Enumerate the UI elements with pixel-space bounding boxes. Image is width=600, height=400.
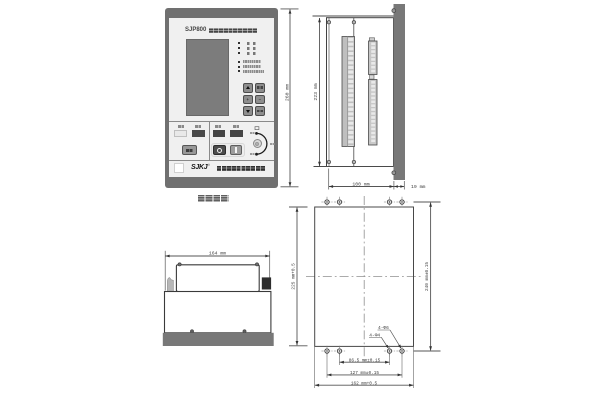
svg-text:223 mm: 223 mm: [313, 83, 319, 100]
svg-text:164 mm: 164 mm: [209, 251, 226, 257]
svg-text:19 mm: 19 mm: [411, 184, 426, 190]
svg-text:86.5 mm±0.15: 86.5 mm±0.15: [349, 358, 381, 363]
svg-text:100 mm: 100 mm: [352, 181, 369, 187]
svg-text:260 mm: 260 mm: [284, 84, 290, 101]
svg-text:4-Φ4: 4-Φ4: [369, 333, 380, 339]
svg-text:127 mm±0.15: 127 mm±0.15: [350, 371, 379, 376]
svg-text:225 mm+0.5: 225 mm+0.5: [292, 263, 297, 290]
svg-text:240 mm±0.15: 240 mm±0.15: [425, 262, 430, 291]
svg-text:162 mm+0.5: 162 mm+0.5: [351, 381, 378, 386]
